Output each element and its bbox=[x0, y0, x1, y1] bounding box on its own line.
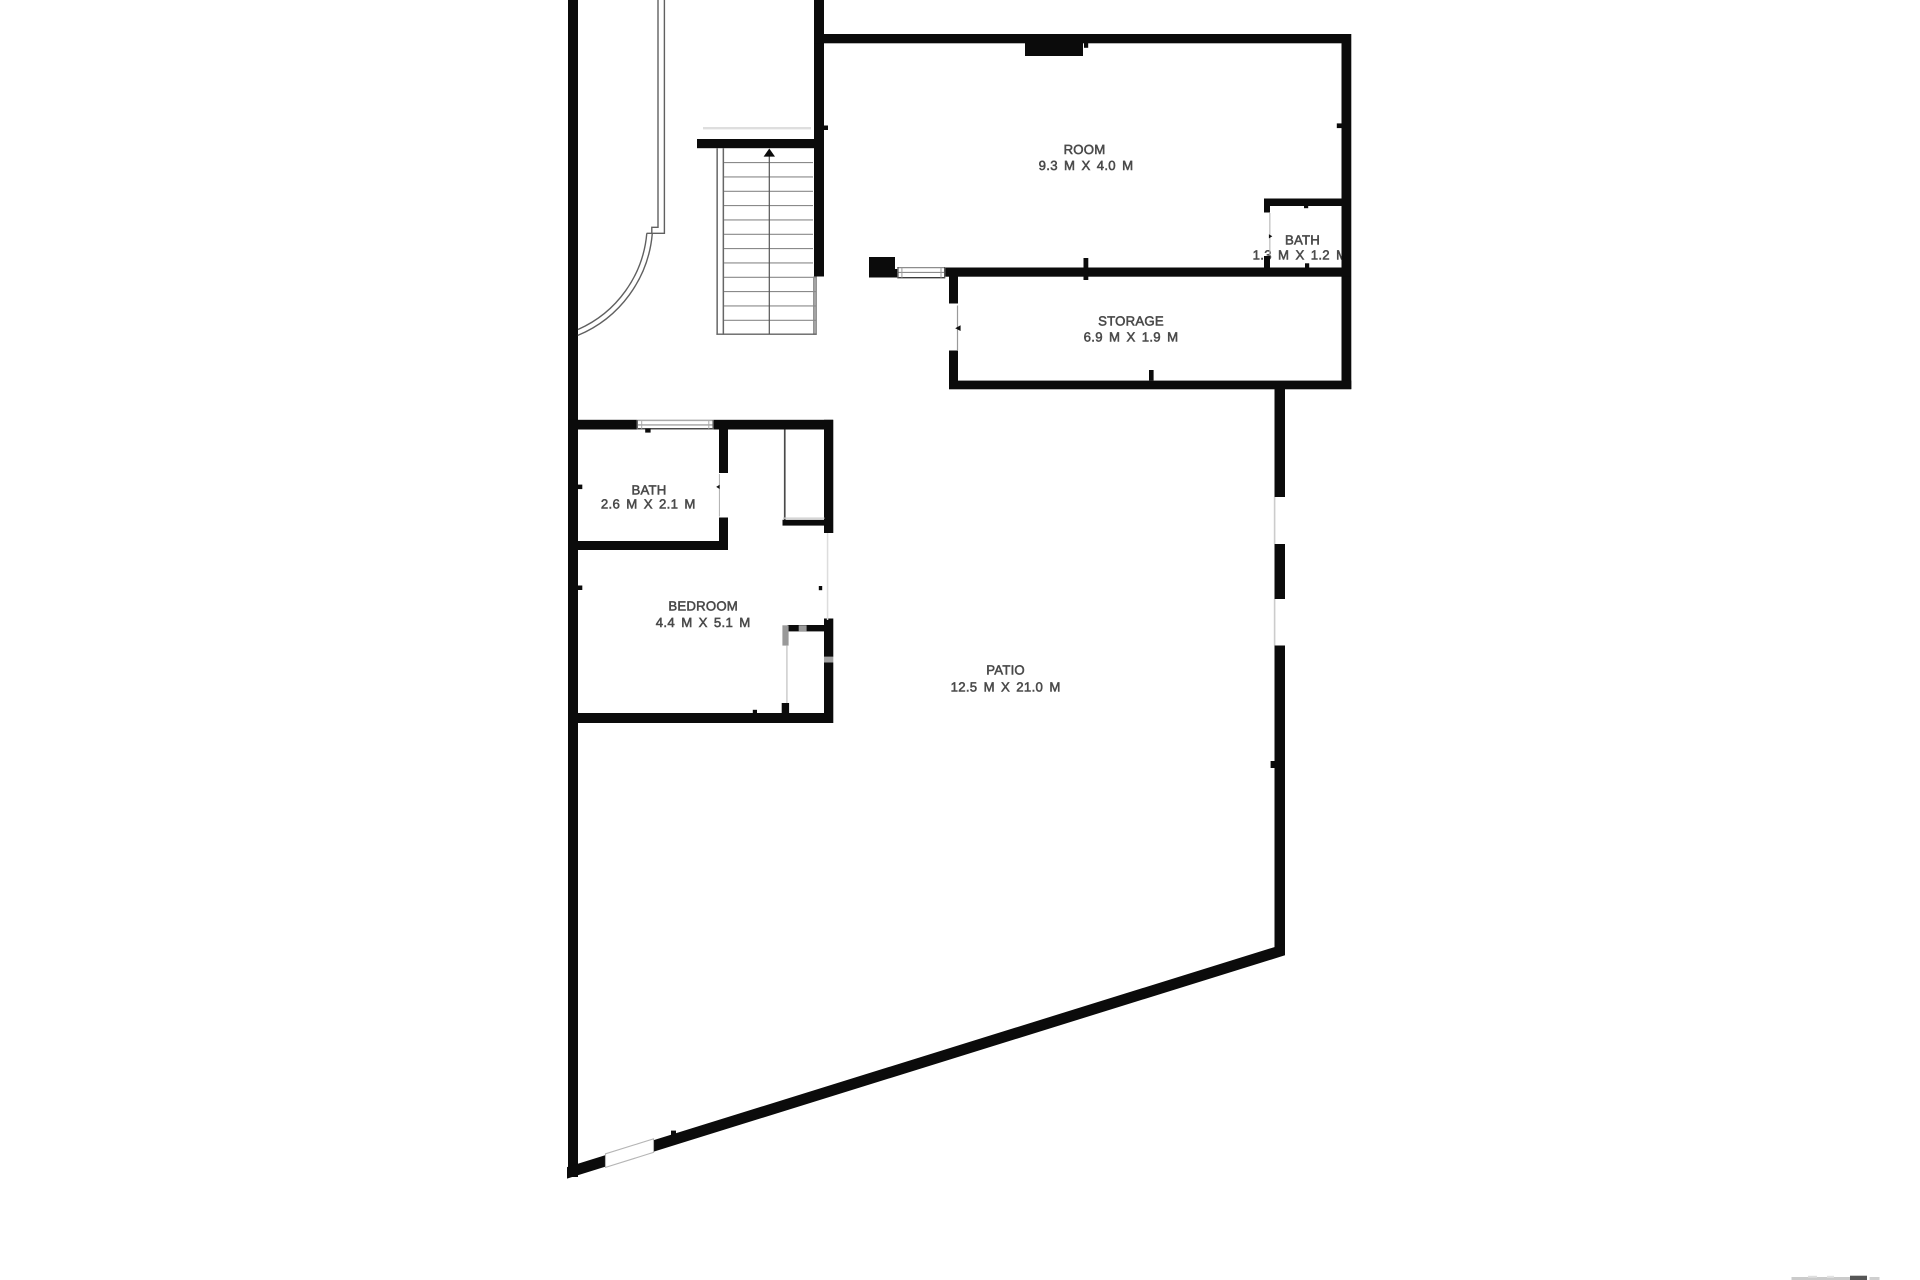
svg-text:2.6 M X 2.1 M: 2.6 M X 2.1 M bbox=[601, 496, 696, 511]
svg-text:STORAGE: STORAGE bbox=[1098, 314, 1164, 329]
svg-text:9.3 M X 4.0 M: 9.3 M X 4.0 M bbox=[1039, 158, 1134, 173]
svg-text:12.5 M X 21.0 M: 12.5 M X 21.0 M bbox=[951, 680, 1061, 695]
svg-text:4.4 M X 5.1 M: 4.4 M X 5.1 M bbox=[656, 615, 751, 630]
svg-text:PATIO: PATIO bbox=[986, 663, 1025, 678]
svg-text:BEDROOM: BEDROOM bbox=[668, 599, 738, 614]
svg-text:6.9 M X 1.9 M: 6.9 M X 1.9 M bbox=[1084, 330, 1179, 345]
svg-text:ROOM: ROOM bbox=[1064, 142, 1106, 157]
svg-text:BATH: BATH bbox=[1285, 233, 1320, 248]
